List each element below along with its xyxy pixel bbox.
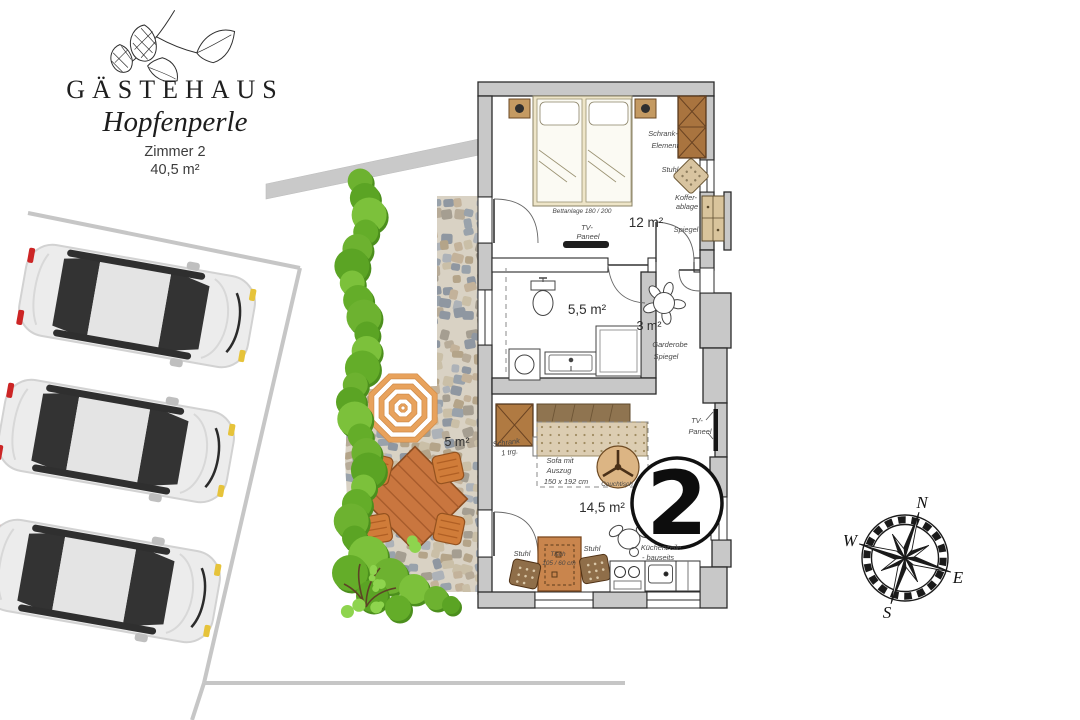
logo-area: 40,5 m²: [150, 162, 199, 178]
car-3: [0, 509, 225, 654]
chair-left-label: Stuhl: [514, 549, 531, 558]
wall-left: [478, 96, 492, 197]
svg-text:Element: Element: [651, 141, 679, 150]
svg-text:Paneel: Paneel: [576, 232, 599, 241]
terrace-chair: [431, 451, 464, 484]
wardrobe-label: Schrank-: [648, 129, 678, 138]
logo-room: Zimmer 2: [144, 144, 205, 160]
wall-left: [478, 345, 492, 510]
chair-right-label: Stuhl: [584, 544, 601, 553]
coffee-table-label: Couchtisch: [601, 481, 633, 488]
floor-plan-page: 5 m²: [0, 0, 1080, 720]
wall-right: [700, 293, 731, 348]
compass-s: S: [883, 603, 892, 622]
bedroom-chair-label: Stuhl: [662, 165, 679, 174]
wall-right: [700, 250, 714, 270]
partition-stub: [648, 258, 656, 272]
table-label: Tisch: [550, 551, 566, 558]
terrace-area-label: 5 m²: [445, 435, 470, 449]
lamp-icon: [515, 104, 524, 113]
vanity-sink: [545, 352, 596, 374]
floor-plan-canvas: 5 m²: [0, 0, 1080, 720]
svg-text:Paneel: Paneel: [688, 427, 711, 436]
sofa-label: Sofa mit: [546, 456, 574, 465]
wall-left: [478, 243, 492, 290]
unit-number: 2: [646, 452, 707, 555]
dining-chair-left: [509, 558, 542, 589]
wall-corner-br: [700, 567, 727, 608]
toilet-icon: [531, 278, 555, 316]
washer-icon: [509, 349, 540, 380]
tv-panel-icon: [563, 241, 609, 248]
svg-text:- bauseits: - bauseits: [642, 553, 674, 562]
kitchenette: [610, 561, 700, 592]
luggage-label: Koffer-: [675, 193, 698, 202]
wall-left: [478, 557, 492, 594]
car-2: [0, 369, 239, 514]
living-area-label: 14,5 m²: [579, 500, 625, 515]
parking-line-driveway: [192, 683, 204, 720]
compass-w: W: [843, 531, 859, 550]
sofa-back: [537, 404, 630, 422]
bedroom-tv-label: TV-: [581, 223, 593, 232]
wall-bottom: [593, 592, 647, 608]
unit-badge: 2: [632, 452, 722, 555]
bedroom-mirror-label: Spiegel: [674, 225, 699, 234]
compass-rose: N E S W: [843, 493, 964, 622]
bed-label: Bettanlage 180 / 200: [553, 208, 612, 215]
svg-text:1 trg.: 1 trg.: [501, 446, 519, 457]
bathroom-area-label: 5,5 m²: [568, 302, 607, 317]
pillow: [540, 102, 579, 125]
bathroom: [506, 268, 641, 380]
wall-bottom: [478, 592, 535, 608]
double-bed: [533, 96, 632, 206]
svg-text:ablage: ablage: [676, 202, 698, 211]
door-entrance: [700, 268, 714, 293]
partition-bedroom-bath: [492, 258, 608, 272]
hop-illustration-icon: [111, 10, 235, 81]
parasol-icon: [369, 374, 437, 442]
door-living-terrace: [478, 510, 492, 557]
tv-panel-icon: [714, 409, 719, 451]
interior-partitions: [492, 258, 700, 272]
terrace-chair: [432, 512, 465, 545]
logo-block: GÄSTEHAUS Hopfenperle Zimmer 2 40,5 m²: [66, 10, 284, 178]
wall-top: [478, 82, 714, 96]
garderobe-label: Garderobe: [652, 340, 687, 349]
bedroom-area-label: 12 m²: [629, 215, 664, 230]
logo-title: GÄSTEHAUS: [66, 75, 284, 104]
car-1: [14, 234, 261, 379]
compass-e: E: [952, 568, 964, 587]
hallway-area-label: 3 m²: [637, 319, 662, 333]
wall-right: [703, 348, 727, 403]
compass-star-icon: [859, 512, 951, 604]
compass-n: N: [915, 493, 929, 512]
door-bedroom-terrace: [478, 197, 492, 243]
dining-chair-right: [579, 554, 611, 584]
wall-right-nook: [724, 192, 731, 250]
lamp-icon: [641, 104, 650, 113]
svg-text:105 / 60 cm: 105 / 60 cm: [542, 560, 576, 567]
living-tv-label: TV-: [691, 416, 703, 425]
svg-text:Auszug: Auszug: [546, 466, 573, 475]
pillow: [589, 102, 628, 125]
wall-right: [712, 540, 731, 567]
svg-text:150 x 192 cm: 150 x 192 cm: [544, 477, 588, 486]
shower: [596, 326, 641, 376]
kitchen-label: Küchenzeile: [641, 543, 681, 552]
hall-mirror-label: Spiegel: [654, 352, 679, 361]
logo-subtitle: Hopfenperle: [102, 106, 248, 138]
